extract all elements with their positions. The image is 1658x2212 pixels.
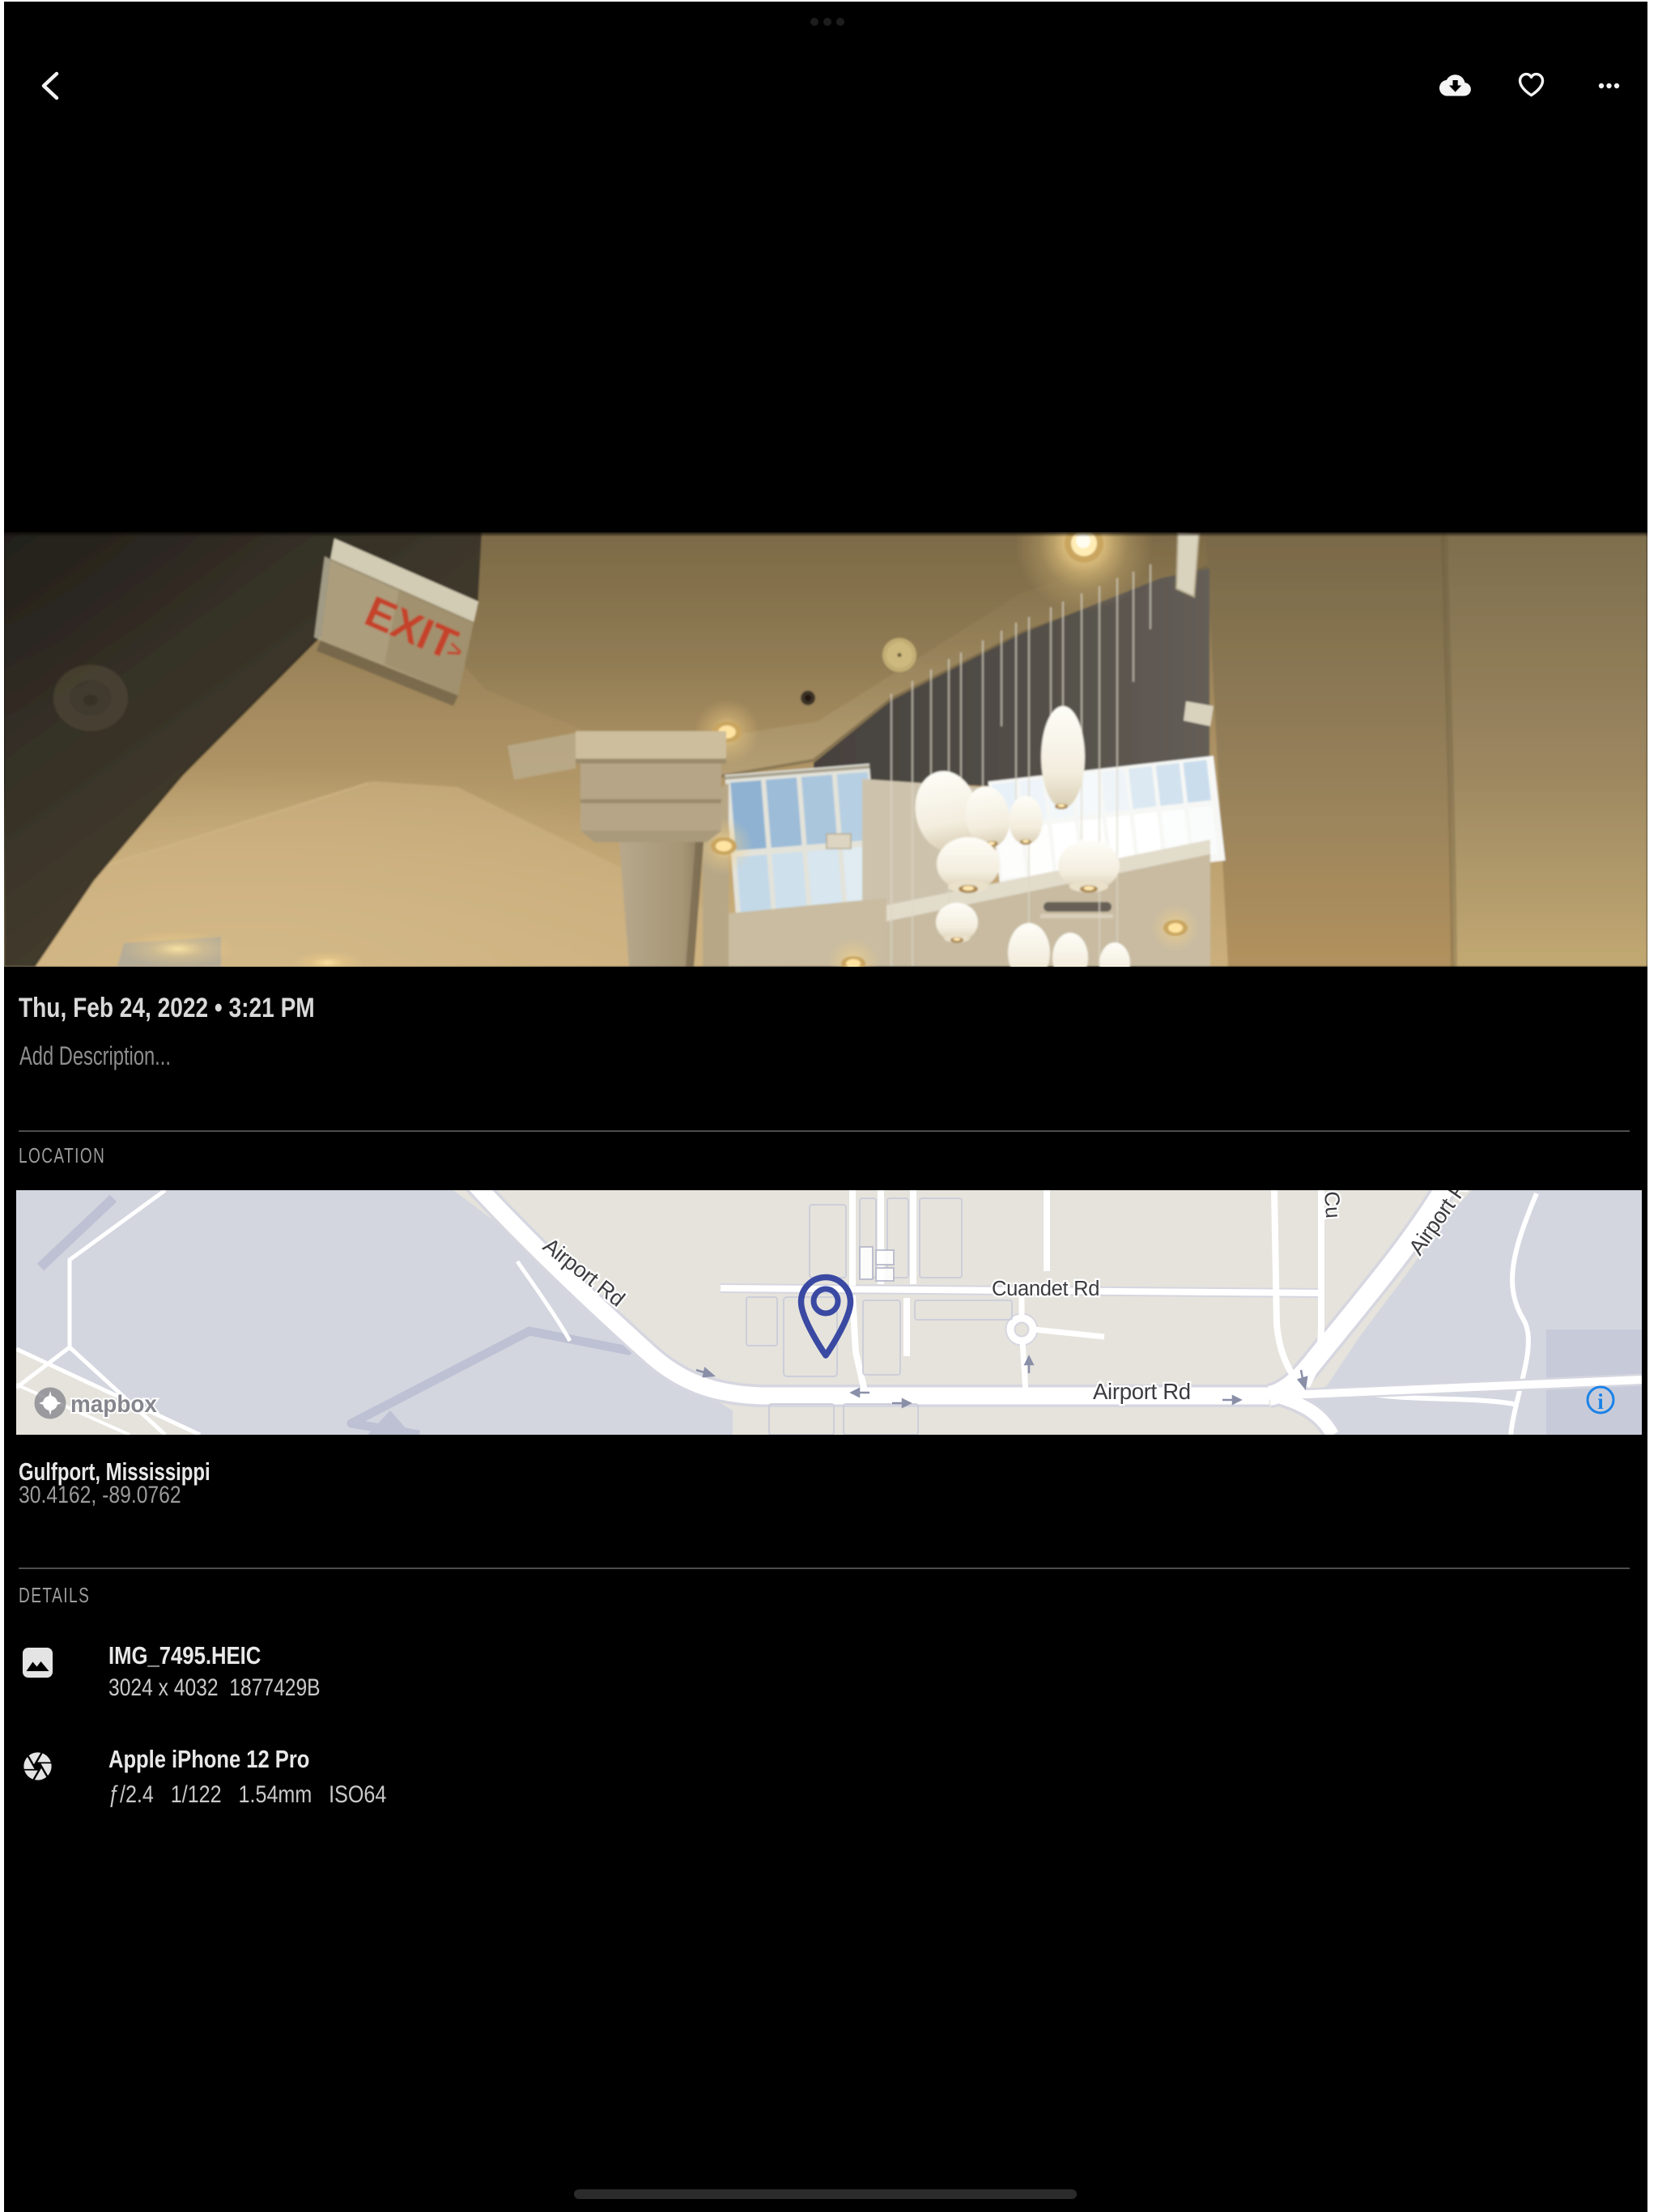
svg-text:mapbox: mapbox (70, 1391, 157, 1418)
svg-text:Airport Rd: Airport Rd (1093, 1379, 1191, 1404)
svg-text:Cu: Cu (1320, 1190, 1346, 1219)
svg-text:i: i (1597, 1389, 1604, 1414)
svg-text:Cuandet Rd: Cuandet Rd (992, 1278, 1099, 1300)
